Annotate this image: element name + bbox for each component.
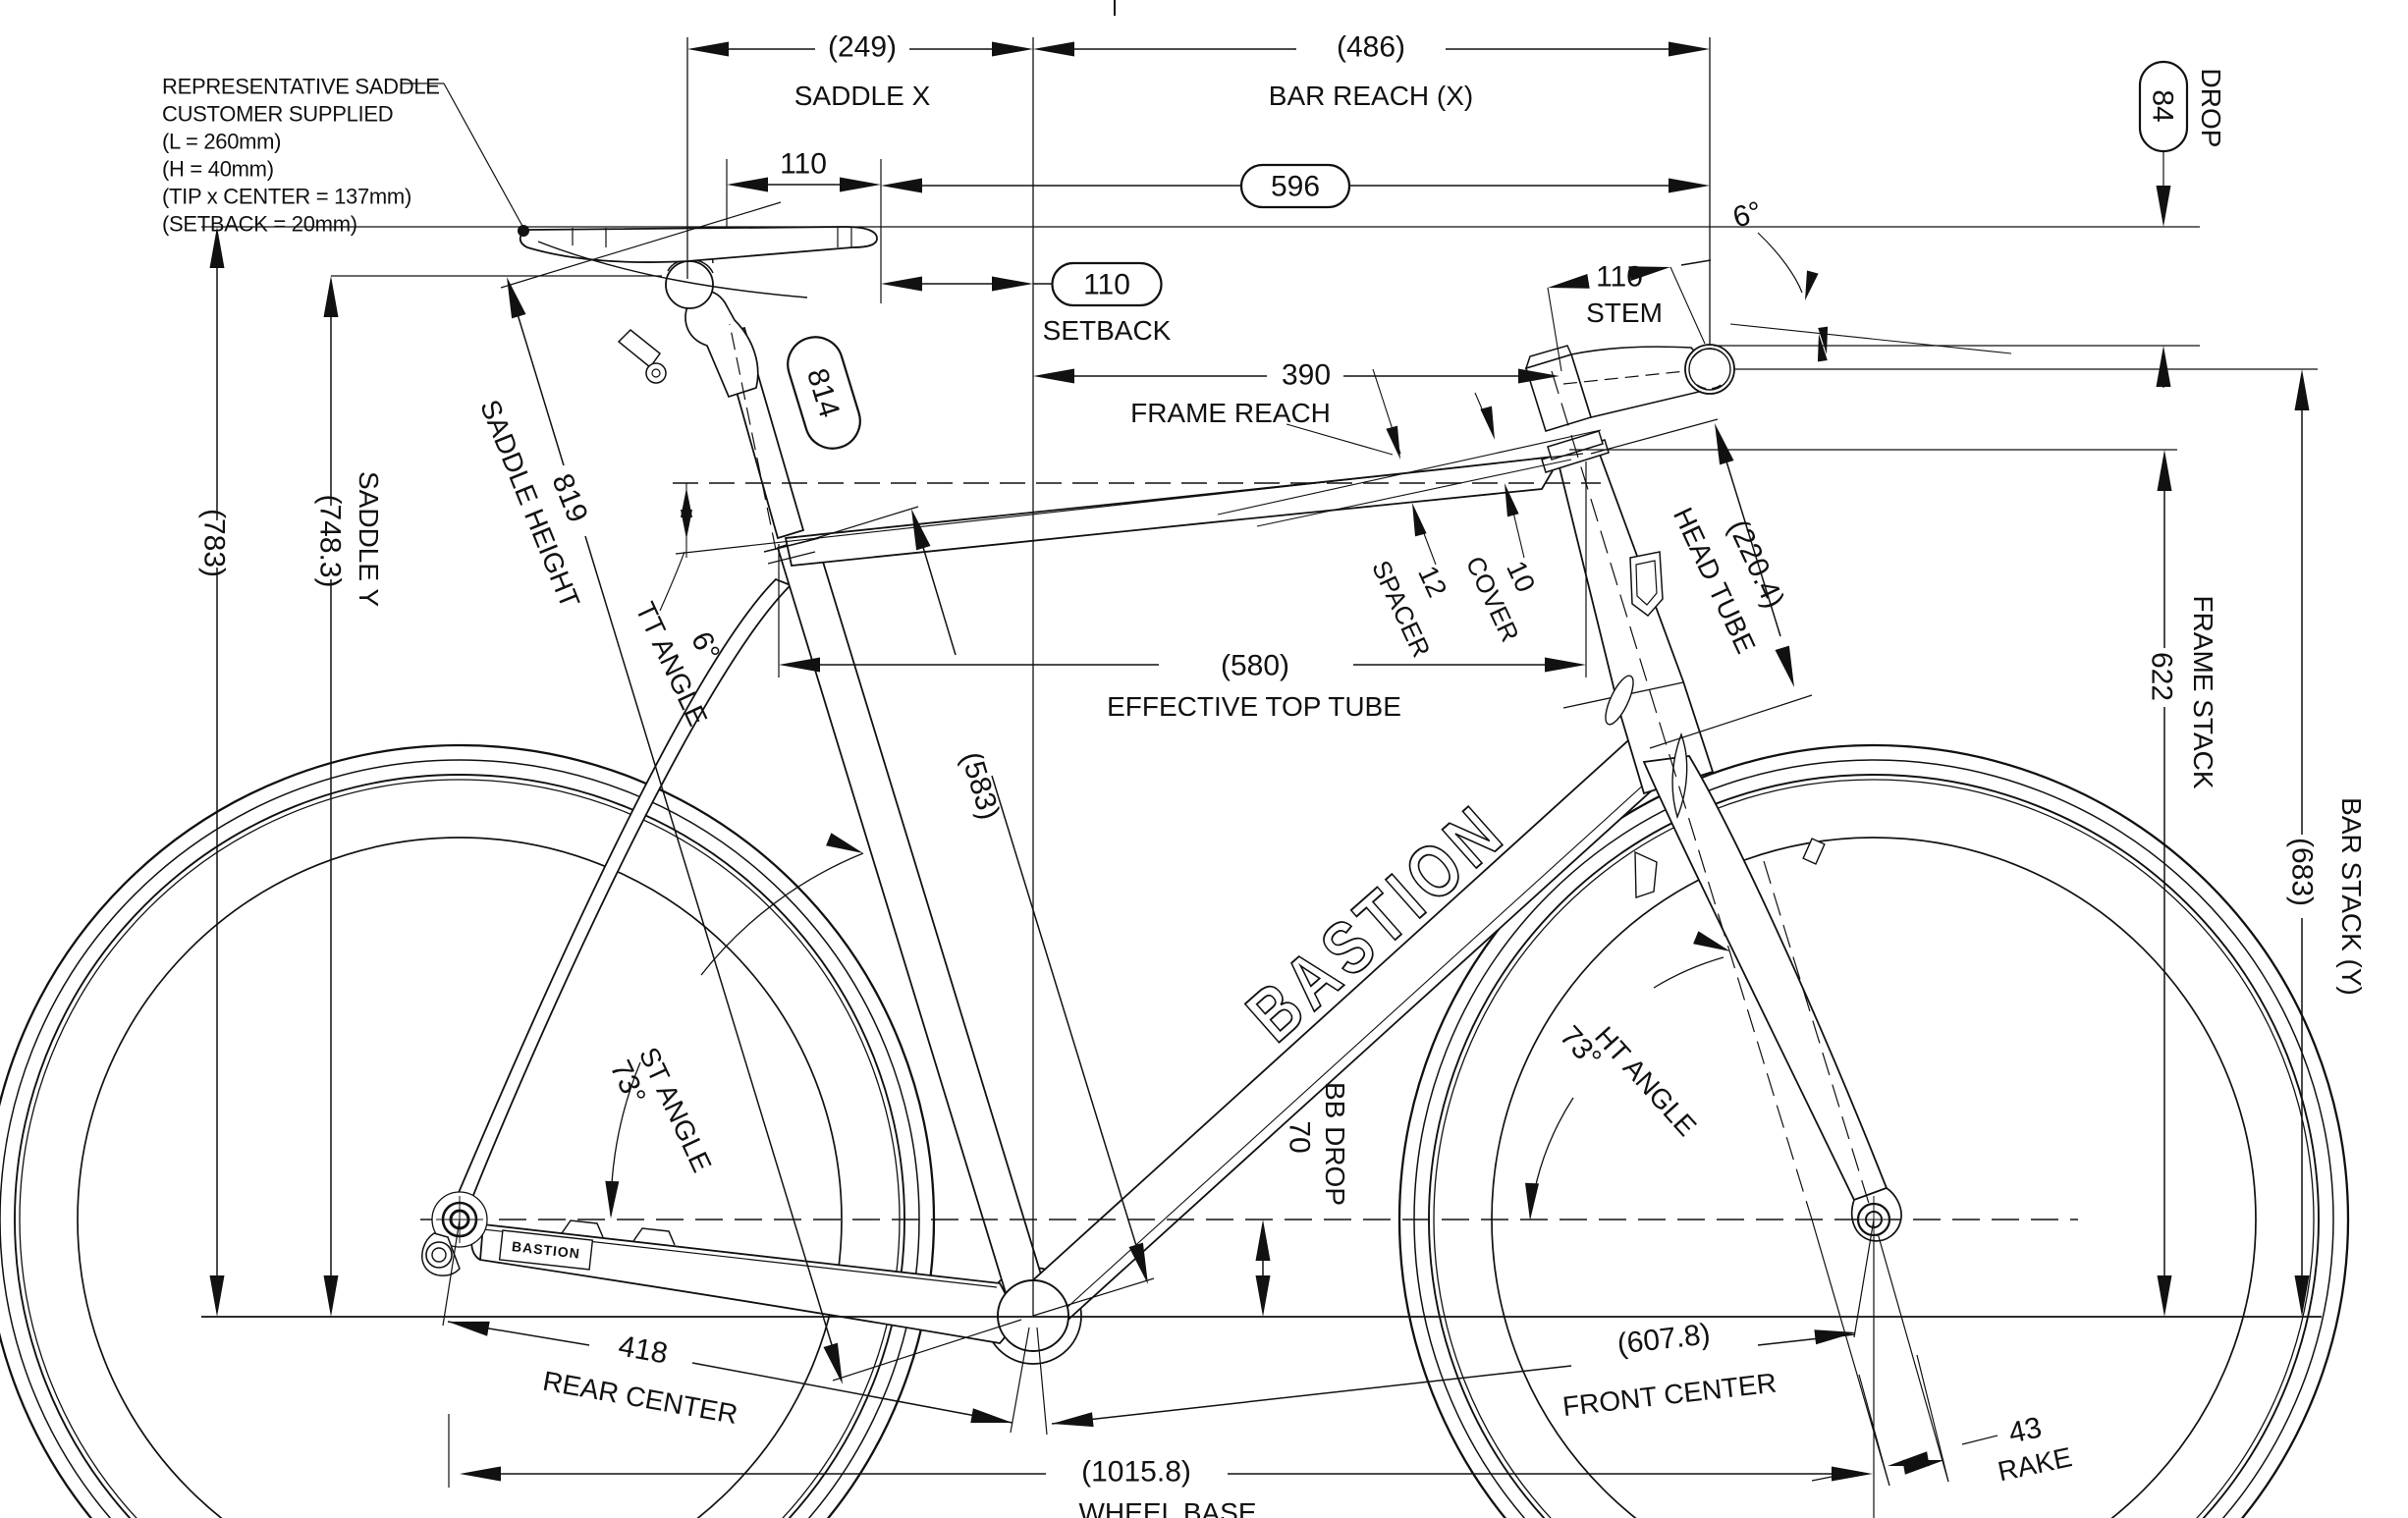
svg-text:EFFECTIVE TOP TUBE: EFFECTIVE TOP TUBE [1107,691,1401,722]
svg-text:(TIP x CENTER = 137mm): (TIP x CENTER = 137mm) [162,185,411,209]
svg-text:(SETBACK = 20mm): (SETBACK = 20mm) [162,212,357,237]
svg-text:(H = 40mm): (H = 40mm) [162,157,274,182]
svg-text:390: 390 [1282,359,1331,392]
svg-text:(L = 260mm): (L = 260mm) [162,130,281,154]
svg-text:43: 43 [2005,1411,2045,1449]
svg-text:(580): (580) [1221,650,1289,682]
svg-text:BAR STACK (Y): BAR STACK (Y) [2336,797,2367,996]
svg-text:110: 110 [1596,261,1643,294]
svg-text:70: 70 [1284,1120,1316,1153]
svg-text:(249): (249) [828,31,897,64]
svg-text:BAR REACH (X): BAR REACH (X) [1269,81,1473,111]
svg-text:110: 110 [1083,269,1130,301]
svg-text:(1015.8): (1015.8) [1081,1456,1191,1489]
svg-text:FRAME STACK: FRAME STACK [2188,595,2218,788]
svg-text:FRAME REACH: FRAME REACH [1130,398,1331,428]
svg-text:BB DROP: BB DROP [1320,1082,1350,1206]
svg-text:CUSTOMER SUPPLIED: CUSTOMER SUPPLIED [162,102,393,127]
svg-text:110: 110 [780,148,827,181]
svg-text:SETBACK: SETBACK [1043,315,1172,346]
svg-text:(486): (486) [1337,31,1405,64]
svg-text:596: 596 [1271,171,1320,203]
svg-text:SADDLE X: SADDLE X [794,81,931,111]
svg-text:(783): (783) [198,509,231,577]
svg-text:84: 84 [2147,89,2179,122]
svg-text:REPRESENTATIVE SADDLE: REPRESENTATIVE SADDLE [162,75,440,99]
svg-text:SADDLE Y: SADDLE Y [354,471,384,607]
svg-text:WHEEL BASE: WHEEL BASE [1078,1497,1256,1518]
svg-text:(683): (683) [2286,838,2319,906]
svg-text:622: 622 [2146,652,2178,701]
svg-text:STEM: STEM [1586,298,1663,328]
svg-text:(748.3): (748.3) [314,494,347,587]
svg-text:DROP: DROP [2196,69,2226,148]
